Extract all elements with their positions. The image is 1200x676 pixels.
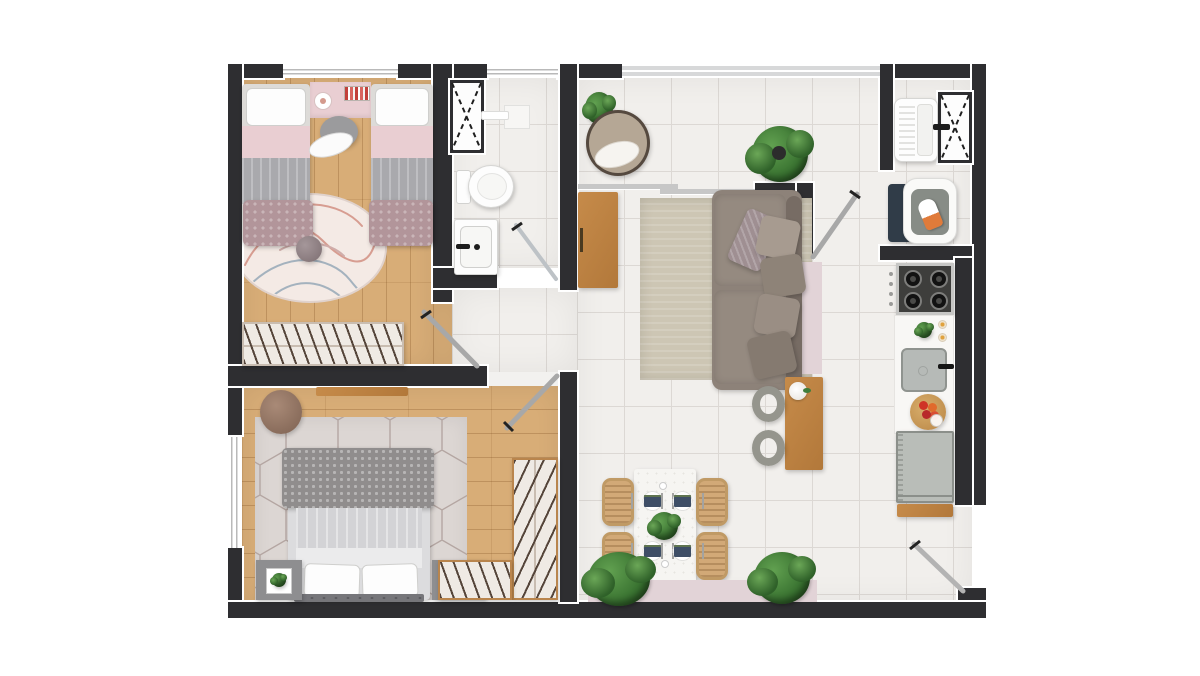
bar-stool [752,430,785,466]
wall-bedroom2-right [560,372,577,602]
sofa-pillow [759,253,807,299]
fridge [896,431,954,503]
apartment-floor-plan [0,0,1200,676]
bed-duvet [242,158,310,204]
burner [930,270,948,288]
glass-cup [659,482,667,490]
bed-throw-knit [369,200,433,246]
bar-stool [752,386,785,422]
centerpiece-plant [650,512,678,540]
burner [904,292,922,310]
fridge-vent [898,433,903,501]
wall-right [972,64,986,505]
fruits [919,401,928,410]
sideboard [578,192,618,288]
kitchen-wood-shelf [897,504,953,517]
balcony-window [622,66,880,76]
burner [930,292,948,310]
books [344,86,370,101]
wall-bedrooms-divider [228,366,487,386]
cup [938,333,947,342]
napkin [644,495,661,507]
tub-faucet [933,124,950,130]
sideboard-handles [580,228,583,252]
napkin [674,495,691,507]
place-setting [666,488,699,514]
wall-kitchen-right [955,258,972,505]
counter-plant [916,322,932,338]
bedroom1-doorway-floor [433,300,452,366]
bed-pillow [375,88,429,126]
monstera-pot [772,146,786,160]
sink-drain [918,366,928,376]
laundry-tub-ridges [899,104,915,156]
dining-chair [602,478,634,526]
bathroom-window [487,66,558,76]
hallway-floor [452,288,577,372]
bed-duvet [371,158,433,204]
duct-shaft-bathroom [450,80,484,153]
wall-laundry-left [880,64,893,170]
bedroom2-window [228,437,242,548]
burner [904,270,922,288]
knit-throw [282,448,434,508]
desk-lamp-bulb [320,98,326,104]
bed-sheet-pink [242,126,310,158]
bedroom1-window [283,66,398,76]
bedroom2-wall-shelf [316,387,408,396]
bedroom2-wardrobe-right [512,458,558,600]
flower-leaf [803,388,811,393]
pompom-decor [296,236,322,262]
floor-plant [588,552,650,606]
floor-plant [754,552,810,604]
place-setting [636,488,669,514]
sofa-back-wall-band [802,262,822,374]
dining-chair [696,532,728,580]
bed-sheet-pink [371,126,433,158]
dining-chair [696,478,728,526]
bedroom2-wardrobe-bottom [438,560,512,600]
pouf [260,390,302,434]
bed-sheet [296,508,422,550]
vanity-faucet-knob [474,244,480,250]
glass-cup [661,560,669,568]
mini-plant [272,573,286,587]
cup [938,320,947,329]
bed-pillow [246,88,306,126]
sink-faucet [938,364,954,369]
napkin [674,545,691,557]
shower-bar [481,111,509,120]
laundry-tub-basin [917,104,933,156]
wall-top [880,64,986,78]
bedroom1-wardrobe [242,322,404,366]
vanity-faucet [456,244,470,249]
headboard [294,594,424,602]
knob-strip [889,272,893,276]
toilet-seat [477,173,507,200]
glass-cup [930,414,943,427]
place-setting [666,538,699,564]
wall-hall-living [560,64,577,290]
wall-bottom [228,602,986,618]
napkin [644,545,661,557]
fridge-door-seam [896,495,954,497]
